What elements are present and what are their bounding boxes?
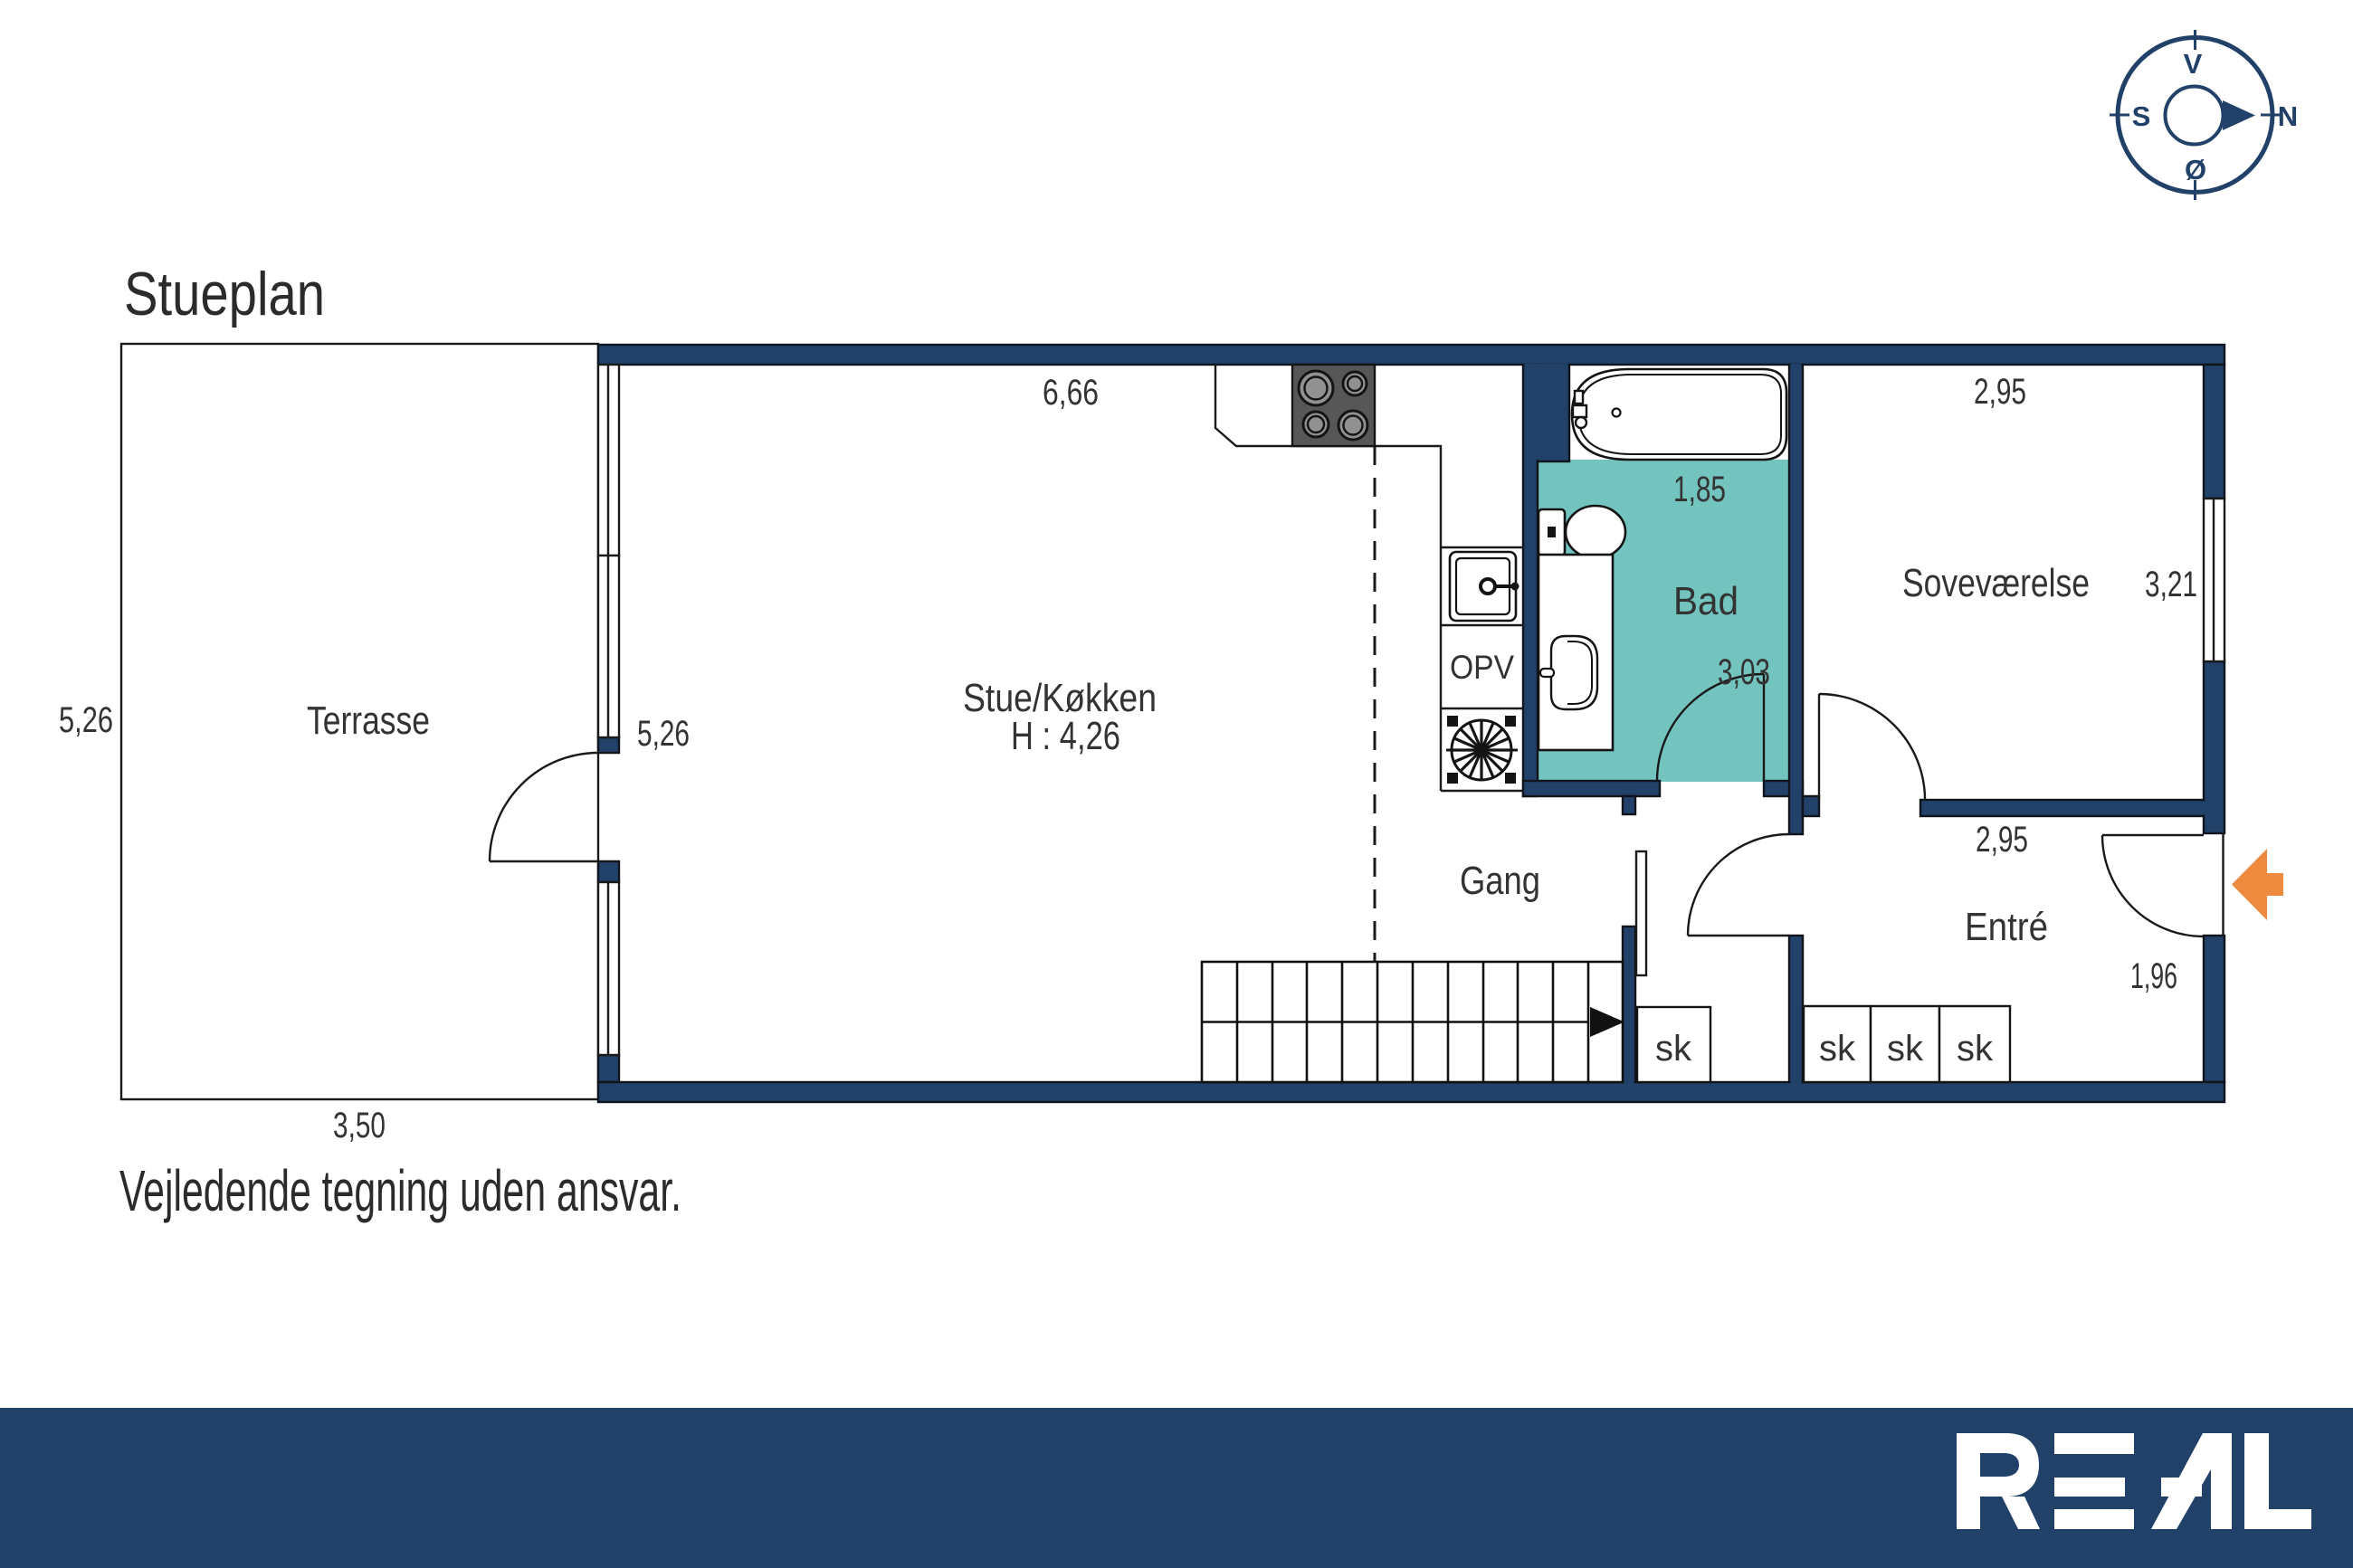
svg-text:N: N (2278, 100, 2298, 132)
svg-text:2,95: 2,95 (1974, 372, 2026, 412)
svg-text:Entré: Entré (1965, 905, 2048, 949)
svg-text:Bad: Bad (1673, 579, 1739, 623)
svg-text:OPV: OPV (1450, 649, 1514, 686)
svg-text:3,03: 3,03 (1718, 652, 1770, 692)
svg-text:3,21: 3,21 (2145, 565, 2197, 604)
svg-text:Ø: Ø (2185, 154, 2206, 185)
svg-text:S: S (2132, 100, 2151, 132)
svg-text:1,96: 1,96 (2130, 956, 2177, 996)
svg-text:3,50: 3,50 (333, 1106, 386, 1145)
svg-text:Gang: Gang (1460, 859, 1540, 903)
svg-text:2,95: 2,95 (1976, 820, 2028, 860)
svg-text:5,26: 5,26 (59, 700, 113, 740)
svg-text:sk: sk (1887, 1029, 1924, 1069)
svg-text:Vejledende tegning uden ansvar: Vejledende tegning uden ansvar. (119, 1158, 681, 1223)
svg-text:sk: sk (1819, 1029, 1856, 1069)
svg-text:sk: sk (1957, 1029, 1994, 1069)
svg-text:6,66: 6,66 (1043, 373, 1099, 413)
svg-text:sk: sk (1655, 1029, 1692, 1069)
svg-text:5,26: 5,26 (637, 714, 690, 754)
svg-text:Stueplan: Stueplan (124, 260, 325, 328)
svg-text:1,85: 1,85 (1673, 470, 1726, 509)
svg-text:Soveværelse: Soveværelse (1902, 561, 2090, 605)
svg-text:Terrasse: Terrasse (307, 698, 430, 743)
svg-text:V: V (2184, 48, 2203, 80)
svg-text:H : 4,26: H : 4,26 (1011, 714, 1120, 758)
